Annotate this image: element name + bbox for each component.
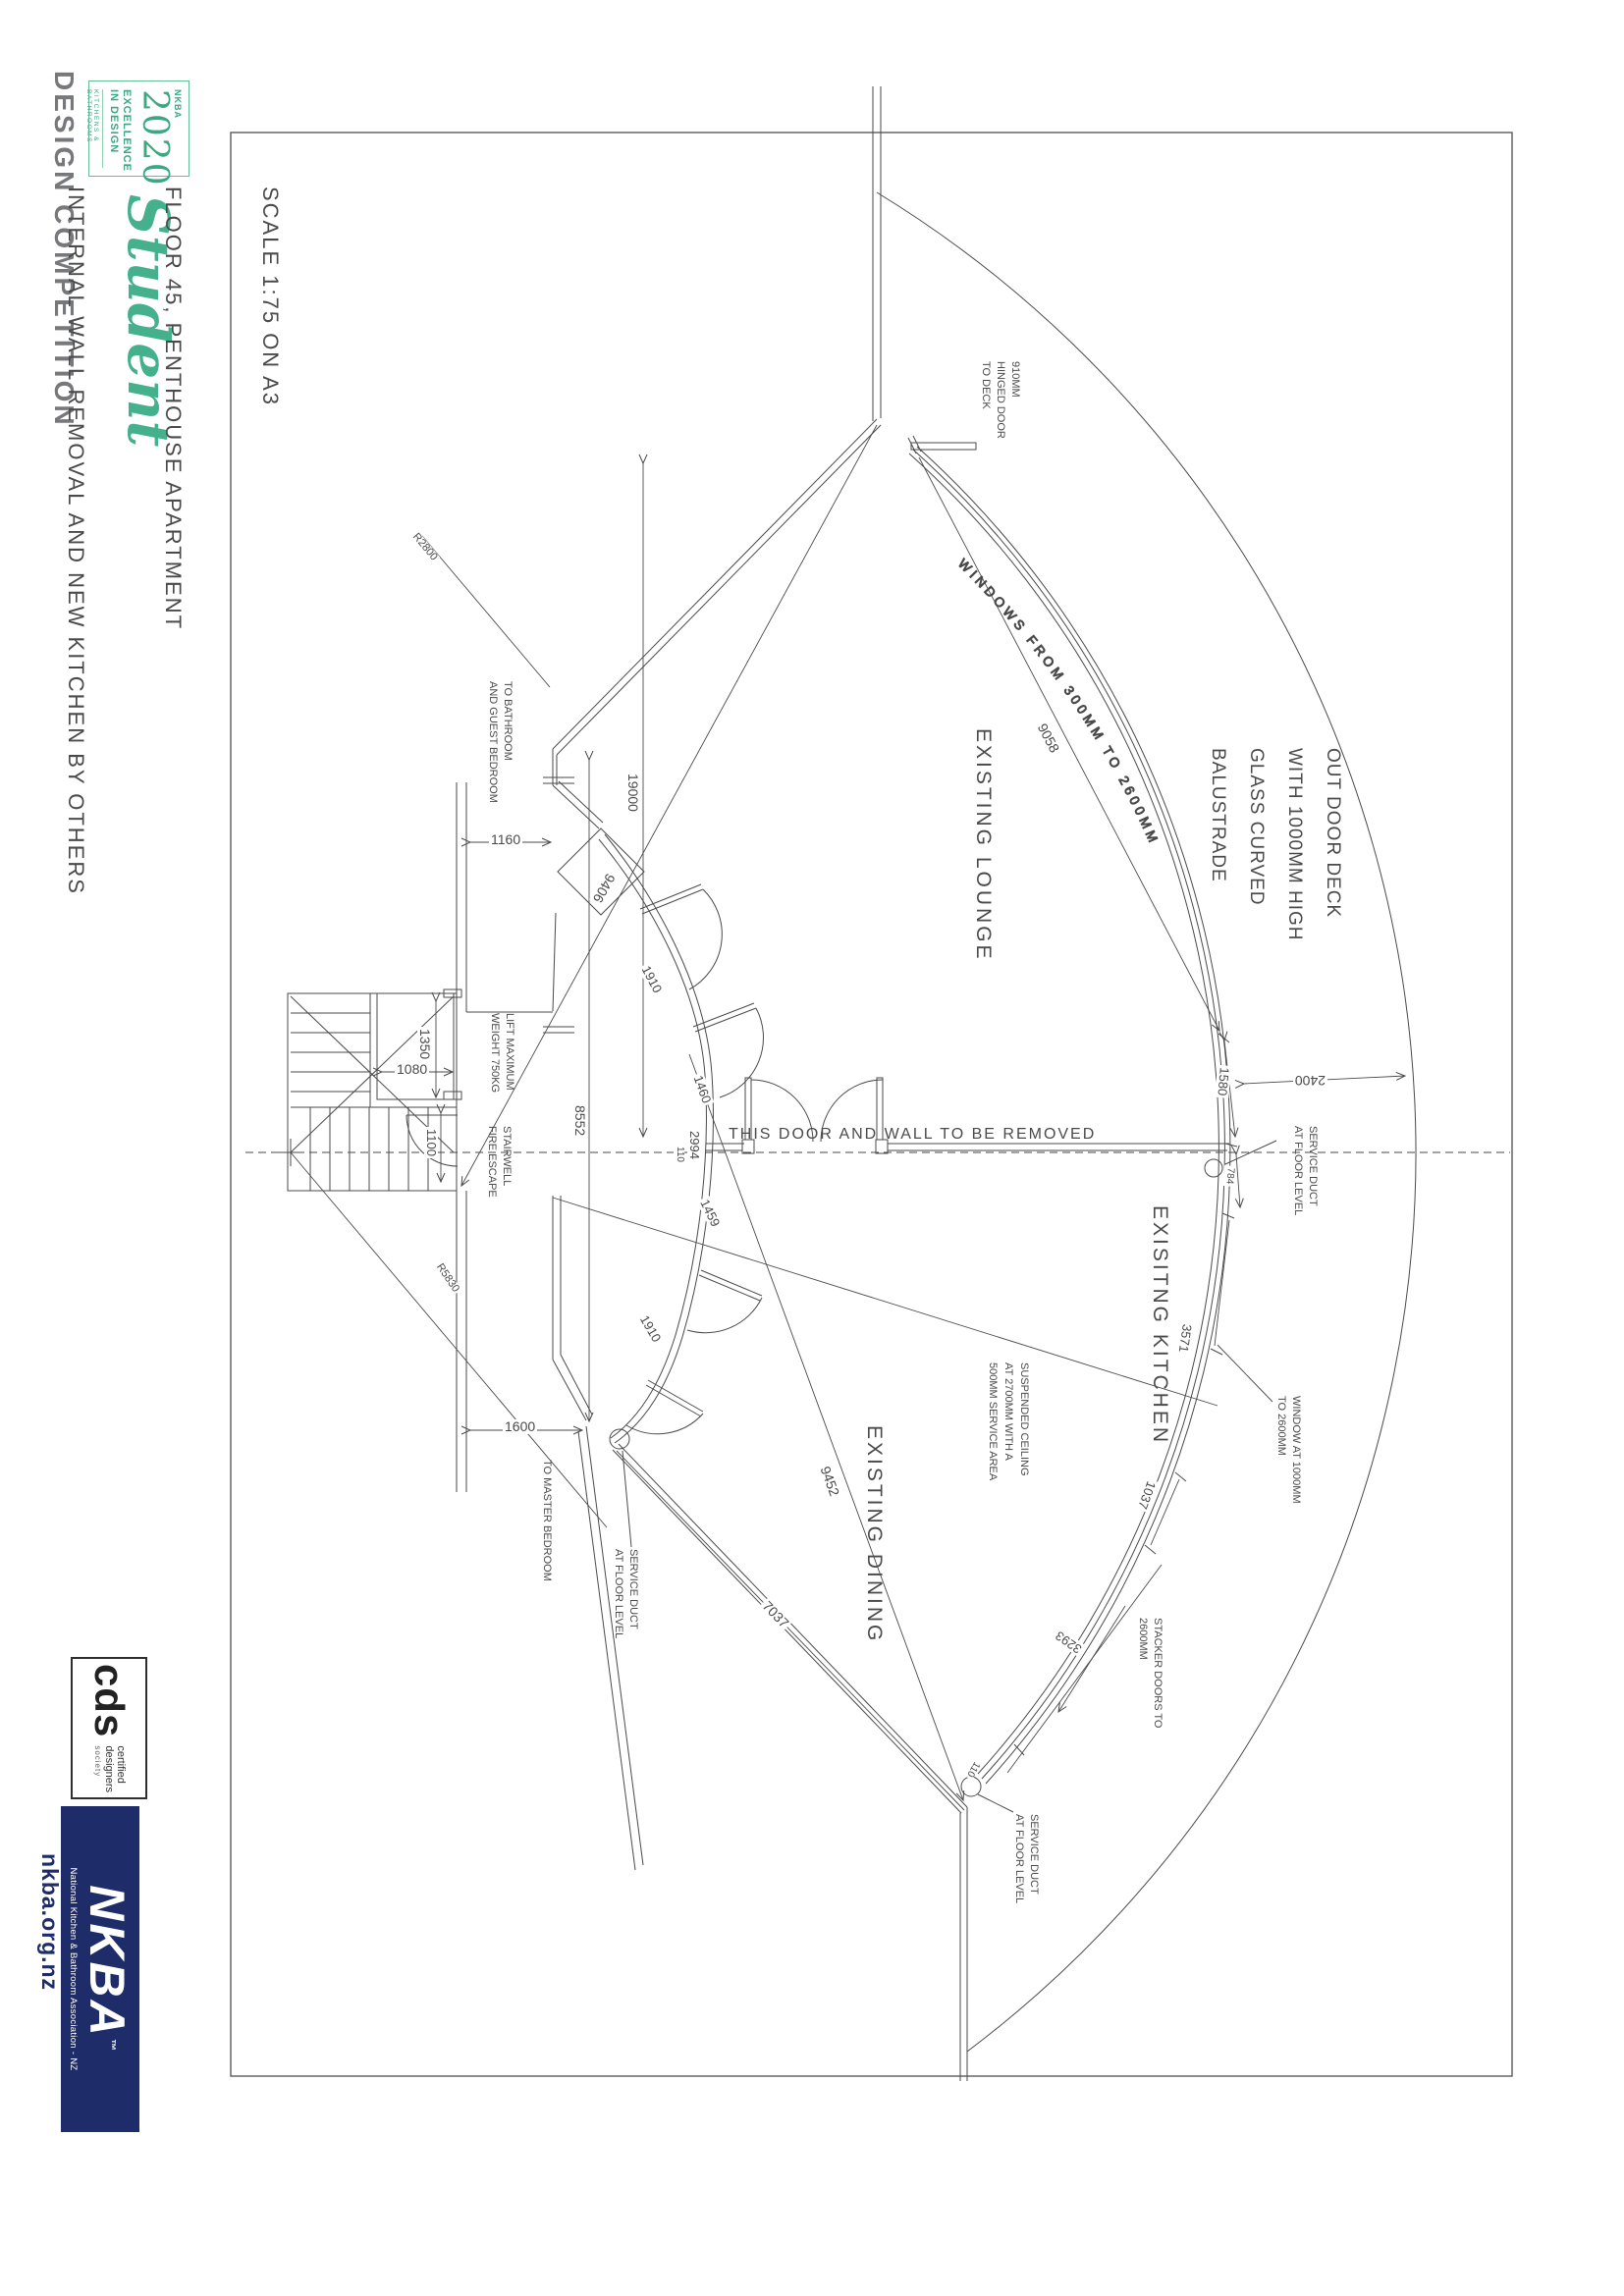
nkba-tm: ™ [105, 2039, 119, 2054]
note-to-master: TO MASTER BEDROOM [539, 1460, 553, 1581]
badge-line2: IN DESIGN [107, 89, 120, 168]
badge-line3: KITCHENS & BATHROOMS [85, 89, 103, 168]
external-walls [553, 86, 967, 2081]
note-service-duct-dining: SERVICE DUCT AT FLOOR LEVEL [1010, 1814, 1041, 1903]
nkba-logo: NKBA™ National Kitchen & Bathroom Associ… [61, 1806, 139, 2132]
badge-year: 2020 [135, 89, 173, 168]
dim-1100: 1100 [424, 1127, 438, 1158]
cds-line1: certified [115, 1745, 127, 1792]
dim-2994: 2994 [687, 1129, 701, 1161]
dim-110-wall: 110 [675, 1145, 685, 1164]
note-lift: LIFT MAXIMUM WEIGHT 750KG [487, 1013, 516, 1093]
nkba-tagline: National Kitchen & Bathroom Association … [69, 1868, 80, 2071]
cds-line2: designers [103, 1745, 115, 1792]
note-to-bathroom: TO BATHROOM AND GUEST BEDROOM [485, 681, 514, 803]
dim-1600: 1600 [503, 1419, 537, 1434]
room-label-lounge: EXISTING LOUNGE [970, 728, 996, 962]
note-hinged-door: 910MM HINGED DOOR TO DECK [978, 361, 1022, 439]
dim-2400: 2400 [1293, 1073, 1327, 1088]
title-block: SCALE 1:75 ON A3 FLOOR 45, PENTHOUSE APA… [253, 187, 352, 1001]
dim-1350: 1350 [417, 1027, 432, 1061]
nkba-2020-award-badge: NKBA 2020 EXCELLENCE IN DESIGN KITCHENS … [88, 80, 189, 177]
dimension-lines [291, 425, 1405, 1810]
curved-window-wall [909, 447, 1237, 1784]
nkba-url: nkba.org.nz [33, 1853, 63, 2073]
title-scope: INTERNAL WALL REMOVAL AND NEW KITCHEN BY… [60, 187, 92, 1001]
note-suspended-ceiling: SUSPENDED CEILING AT 2700MM WITH A 500MM… [984, 1362, 1031, 1480]
deck-balustrade-arc [877, 192, 1416, 2052]
note-this-door: THIS DOOR AND WALL TO BE REMOVED [729, 1125, 1096, 1145]
nkba-name: NKBA [81, 1885, 135, 2038]
note-service-duct-kitchen: SERVICE DUCT AT FLOOR LEVEL [1289, 1126, 1320, 1215]
title-scale: SCALE 1:75 ON A3 [254, 187, 287, 1001]
dim-1160: 1160 [489, 832, 522, 847]
room-label-dining: EXISTING DINING [861, 1425, 887, 1643]
dim-19000: 19000 [625, 772, 640, 814]
deck-hinged-door [908, 436, 976, 454]
dim-1580: 1580 [1216, 1065, 1231, 1098]
title-floor: FLOOR 45, PENTHOUSE APARTMENT [157, 187, 189, 1001]
note-stacker-doors: STACKER DOORS TO 2600MM [1134, 1618, 1164, 1728]
note-outdoor-deck: OUT DOOR DECK WITH 1000MM HIGH GLASS CUR… [1198, 748, 1351, 941]
drawing-sheet: WINDOWS FROM 300MM TO 2600MM DESIGN COMP… [0, 0, 1624, 2296]
dim-8552: 8552 [572, 1103, 587, 1138]
dim-1080: 1080 [395, 1062, 429, 1077]
cds-line3: society [91, 1745, 103, 1792]
note-window: WINDOW AT 1000MM TO 2600MM [1272, 1396, 1303, 1504]
room-label-kitchen: EXISITNG KITCHEN [1147, 1205, 1172, 1445]
stairwell [277, 993, 458, 1191]
service-ducts [610, 1141, 1276, 1812]
badge-line1: EXCELLENCE [120, 89, 133, 168]
cds-acronym: cds [88, 1664, 130, 1737]
cds-logo: cds certified designers society [71, 1657, 147, 1799]
note-service-duct-master: SERVICE DUCT AT FLOOR LEVEL [610, 1549, 640, 1638]
dim-784: 784 [1223, 1165, 1235, 1187]
note-stairwell: STAIRWELL FIRE ESCAPE [484, 1126, 514, 1198]
